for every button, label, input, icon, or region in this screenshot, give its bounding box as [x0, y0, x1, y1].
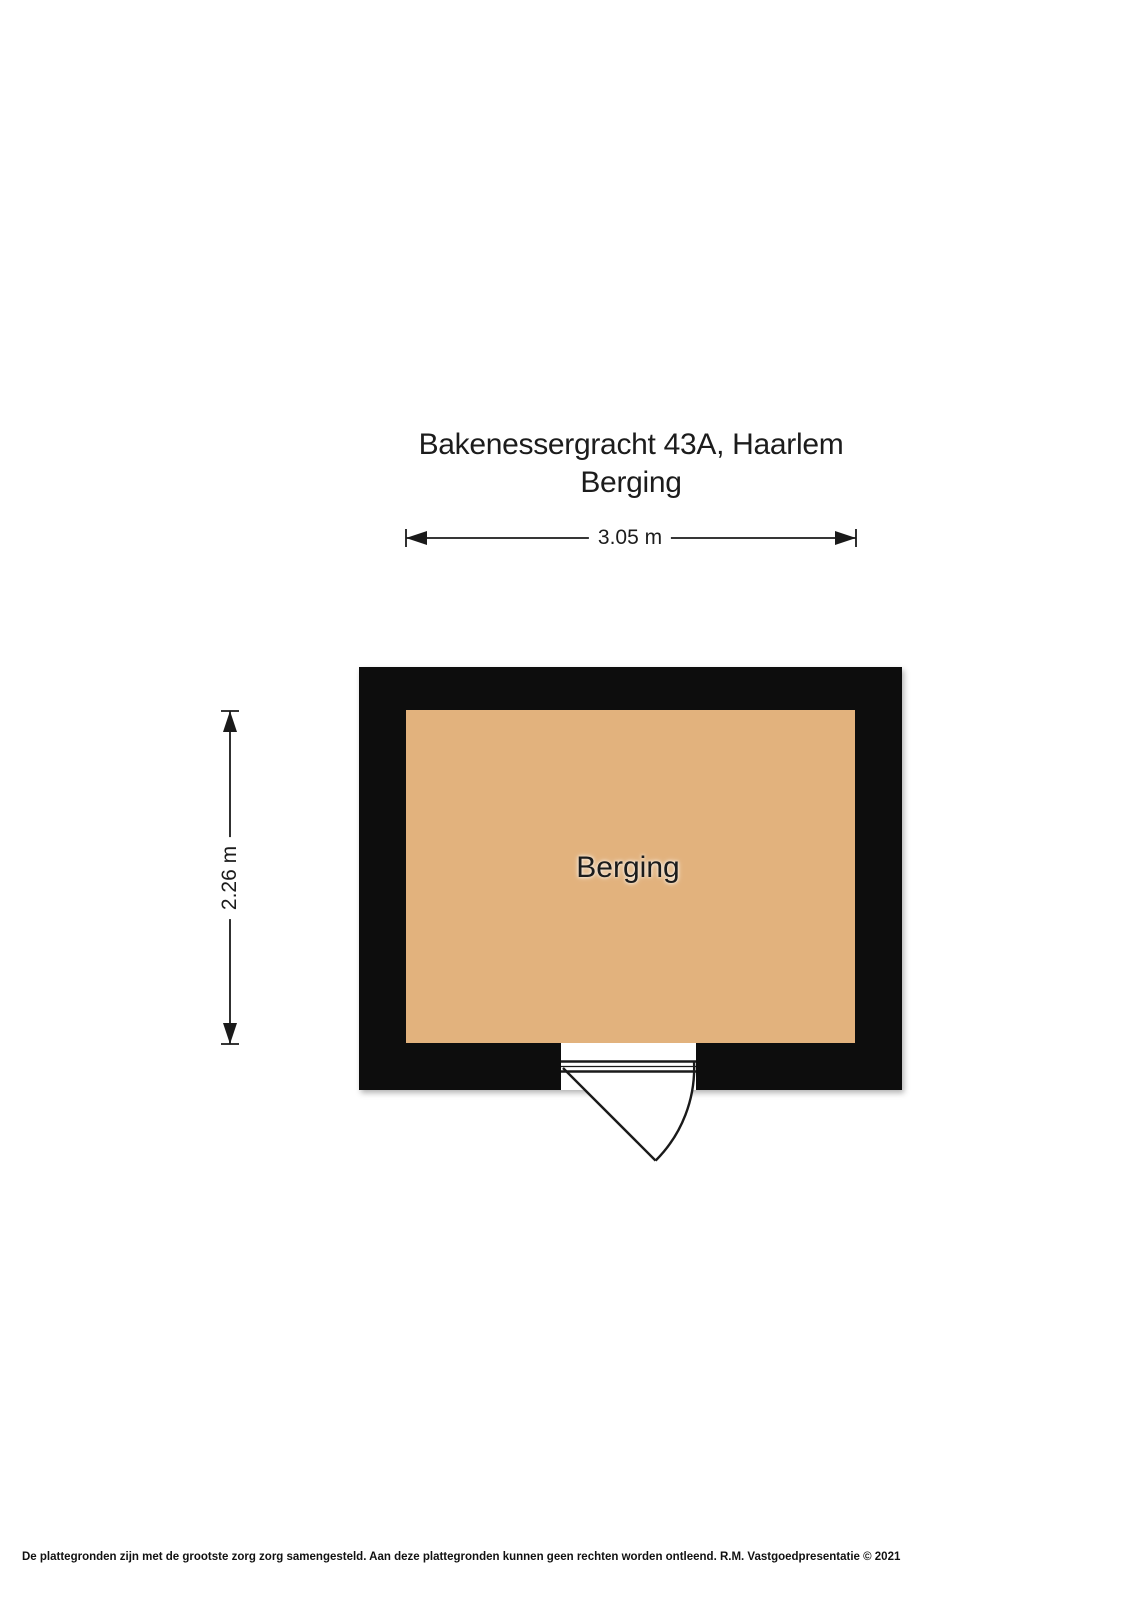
arrow-left-icon [406, 531, 427, 545]
page-title: Bakenessergracht 43A, Haarlem [366, 426, 896, 464]
floorplan-page: Bakenessergracht 43A, Haarlem Berging 3.… [0, 0, 1131, 1600]
arrow-down-icon [223, 1023, 237, 1044]
room-label: Berging [576, 851, 679, 885]
plan-header: Bakenessergracht 43A, Haarlem Berging [366, 426, 896, 502]
door [561, 1043, 696, 1161]
arrow-right-icon [835, 531, 856, 545]
width-dimension-label: 3.05 m [589, 526, 671, 550]
arrow-up-icon [223, 711, 237, 732]
door-swing-area [563, 1061, 694, 1161]
footer-disclaimer: De plattegronden zijn met de grootste zo… [22, 1551, 900, 1563]
page-subtitle: Berging [366, 464, 896, 502]
floorplan-canvas [0, 0, 1131, 1600]
height-dimension-label: 2.26 m [218, 837, 242, 919]
